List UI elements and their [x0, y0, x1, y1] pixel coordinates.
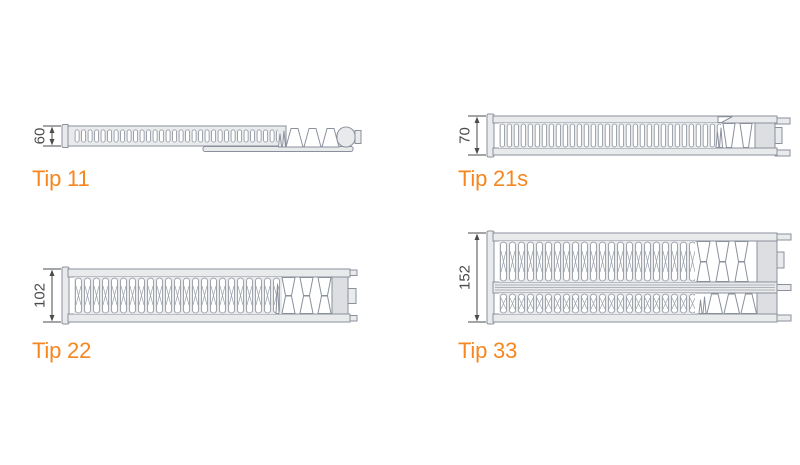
- tip33-bottom-panel: [493, 314, 777, 322]
- tip11-convector-fins: [279, 129, 340, 148]
- tip22-bottom-corner-tick: [350, 316, 357, 322]
- tip33-label: Tip 33: [458, 340, 517, 362]
- tip11-radiator-body: [62, 125, 361, 152]
- figure-tip11: 60: [30, 108, 368, 160]
- tip33-lower-convector-fins: [699, 294, 757, 314]
- tip33-radiator-body: [487, 231, 791, 324]
- radiator-types-diagram: 60: [0, 0, 800, 465]
- tip33-middle-pipe-stub: [777, 285, 791, 291]
- tip22-grille-slots: [74, 277, 282, 314]
- tip22-cross-section-drawing: 102: [30, 260, 362, 334]
- tip11-grille-slots: [74, 129, 278, 143]
- tip22-convector-fins: [276, 278, 331, 314]
- tip22-label: Tip 22: [32, 340, 91, 362]
- tip21s-radiator-body: [487, 114, 790, 157]
- tip33-middle-panel: [493, 282, 777, 293]
- tip22-top-corner-tick: [350, 270, 357, 276]
- tip11-height-value: 60: [31, 128, 48, 145]
- tip11-connection-stub: [355, 131, 361, 144]
- tip21s-height-value: 70: [456, 127, 473, 144]
- tip22-radiator-body: [62, 267, 357, 324]
- tip21s-dimension-arrow: 70: [456, 116, 486, 155]
- tip22-end-plate: [332, 277, 348, 314]
- tip21s-connection-stub: [775, 128, 782, 144]
- tip11-cross-section-drawing: 60: [30, 108, 368, 160]
- tip11-dimension-arrow: 60: [31, 126, 61, 146]
- figure-tip33: 152: [455, 222, 795, 328]
- tip33-bottom-pipe-stub: [777, 315, 791, 321]
- tip22-top-panel: [68, 269, 350, 277]
- tip21s-bottom-panel: [493, 148, 777, 155]
- tip21s-cross-section-drawing: 70: [455, 106, 795, 164]
- tip21s-top-panel: [493, 116, 777, 123]
- tip33-top-panel: [493, 233, 777, 241]
- tip33-upper-grille-slots: [499, 241, 695, 282]
- tip22-dimension-arrow: 102: [31, 269, 61, 322]
- tip33-dimension-arrow: 152: [456, 233, 486, 322]
- tip33-top-pipe-stub: [777, 234, 791, 240]
- tip33-height-value: 152: [456, 265, 473, 290]
- tip33-cross-section-drawing: 152: [455, 222, 795, 328]
- tip33-connection-stub: [777, 252, 784, 268]
- tip21s-label: Tip 21s: [458, 168, 528, 190]
- tip33-left-end-cap: [487, 231, 494, 324]
- tip22-bottom-panel: [68, 314, 350, 322]
- tip33-lower-grille-slots: [499, 293, 695, 314]
- tip22-height-value: 102: [31, 283, 48, 308]
- tip11-end-dome: [337, 127, 355, 147]
- tip11-label: Tip 11: [32, 168, 90, 190]
- tip33-upper-convector-fins: [697, 242, 748, 282]
- figure-tip21s: 70: [455, 106, 795, 164]
- figure-tip22: 102: [30, 260, 362, 334]
- tip33-end-block: [757, 241, 777, 314]
- tip21s-grille-slots: [499, 123, 721, 148]
- tip22-connection-stub: [348, 289, 356, 304]
- tip21s-end-block: [755, 123, 775, 148]
